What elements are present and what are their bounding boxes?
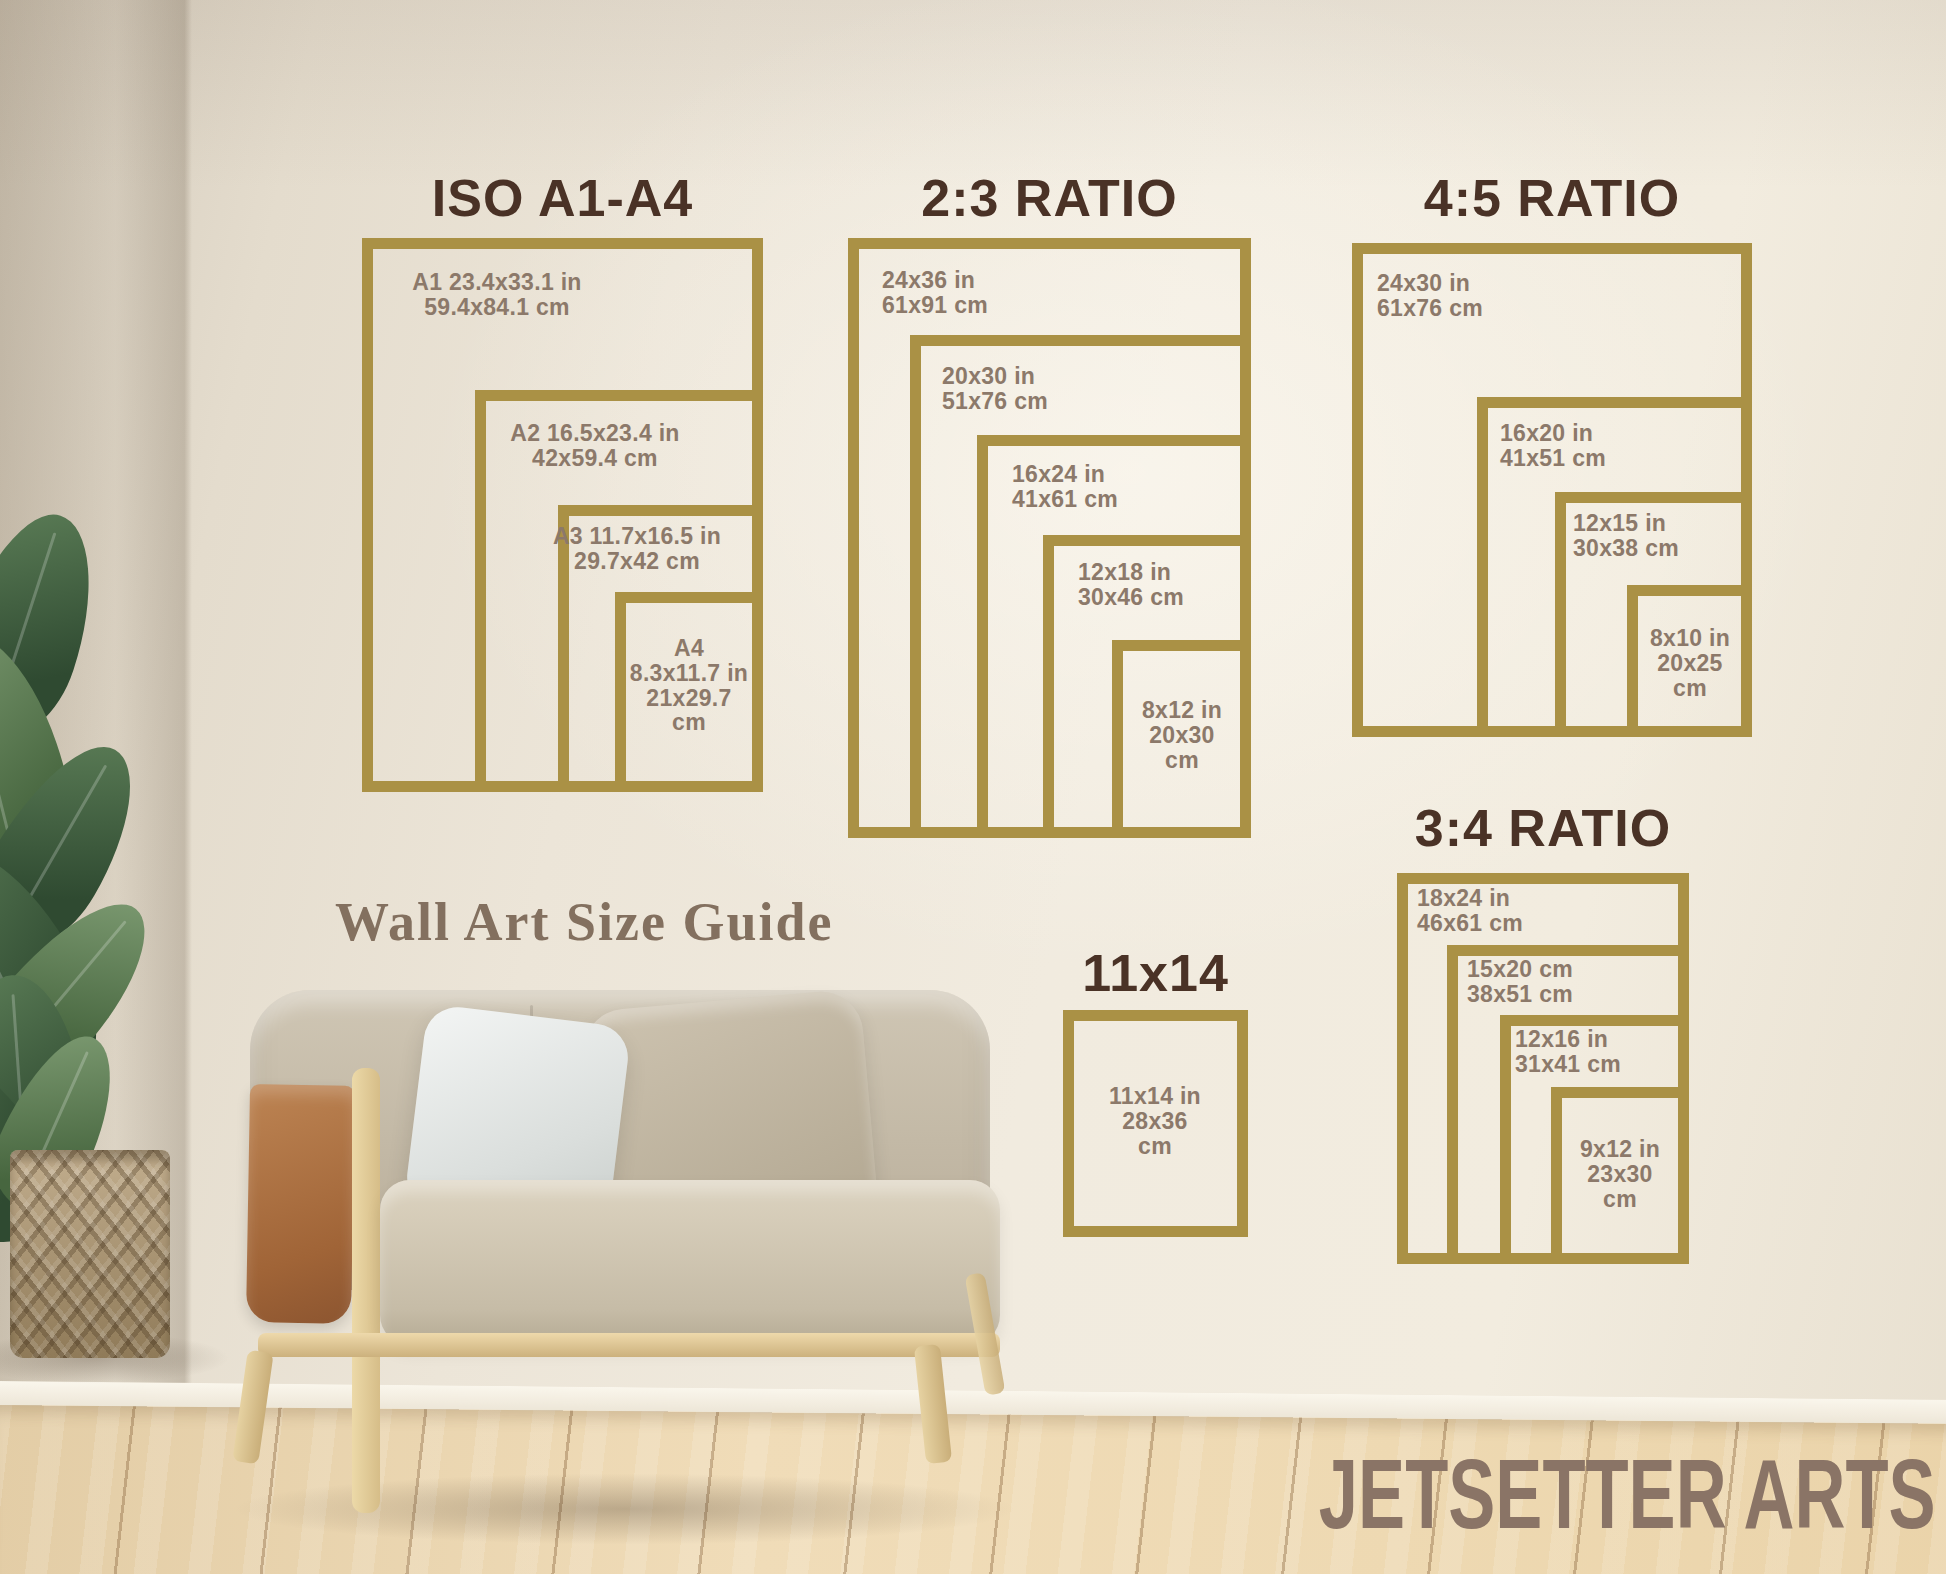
size-label-ratio-2-3-8x12: 8x12 in20x30cm [1142,698,1222,772]
size-label-iso-a1: A1 23.4x33.1 in59.4x84.1 cm [412,270,581,320]
group-title-iso: ISO A1-A4 [432,168,693,228]
size-label-ratio-4-5-8x10: 8x10 in20x25cm [1650,626,1730,700]
group-title-ratio-3-4: 3:4 RATIO [1415,798,1672,858]
size-label-iso-a2: A2 16.5x23.4 in42x59.4 cm [510,421,679,471]
size-label-ratio-4-5-24x30: 24x30 in61x76 cm [1377,271,1483,321]
size-label-ratio-4-5-16x20: 16x20 in41x51 cm [1500,421,1606,471]
size-label-ratio-2-3-24x36: 24x36 in61x91 cm [882,268,988,318]
group-title-ratio-4-5: 4:5 RATIO [1424,168,1681,228]
size-label-ratio-2-3-16x24: 16x24 in41x61 cm [1012,462,1118,512]
size-label-ratio-4-5-12x15: 12x15 in30x38 cm [1573,511,1679,561]
group-title-ratio-2-3: 2:3 RATIO [921,168,1178,228]
size-label-size-11x14-11x14: 11x14 in28x36cm [1109,1084,1201,1158]
size-label-iso-a4: A48.3x11.7 in21x29.7cm [630,636,748,735]
room-mockup: ISO A1-A4A1 23.4x33.1 in59.4x84.1 cmA2 1… [0,0,1946,1574]
size-label-ratio-3-4-18x24: 18x24 in46x61 cm [1417,886,1523,936]
size-guide-diagram: ISO A1-A4A1 23.4x33.1 in59.4x84.1 cmA2 1… [0,0,1946,1574]
size-label-ratio-3-4-12x16: 12x16 in31x41 cm [1515,1027,1621,1077]
brand-watermark: JETSETTER ARTS [1319,1438,1936,1551]
size-label-ratio-2-3-20x30: 20x30 in51x76 cm [942,364,1048,414]
size-label-ratio-3-4-9x12: 9x12 in23x30cm [1580,1137,1660,1211]
size-label-ratio-3-4-15x20: 15x20 cm38x51 cm [1467,957,1573,1007]
size-label-iso-a3: A3 11.7x16.5 in29.7x42 cm [553,524,721,574]
size-label-ratio-2-3-12x18: 12x18 in30x46 cm [1078,560,1184,610]
group-title-size-11x14: 11x14 [1082,943,1229,1003]
poster-caption: Wall Art Size Guide [335,891,834,953]
